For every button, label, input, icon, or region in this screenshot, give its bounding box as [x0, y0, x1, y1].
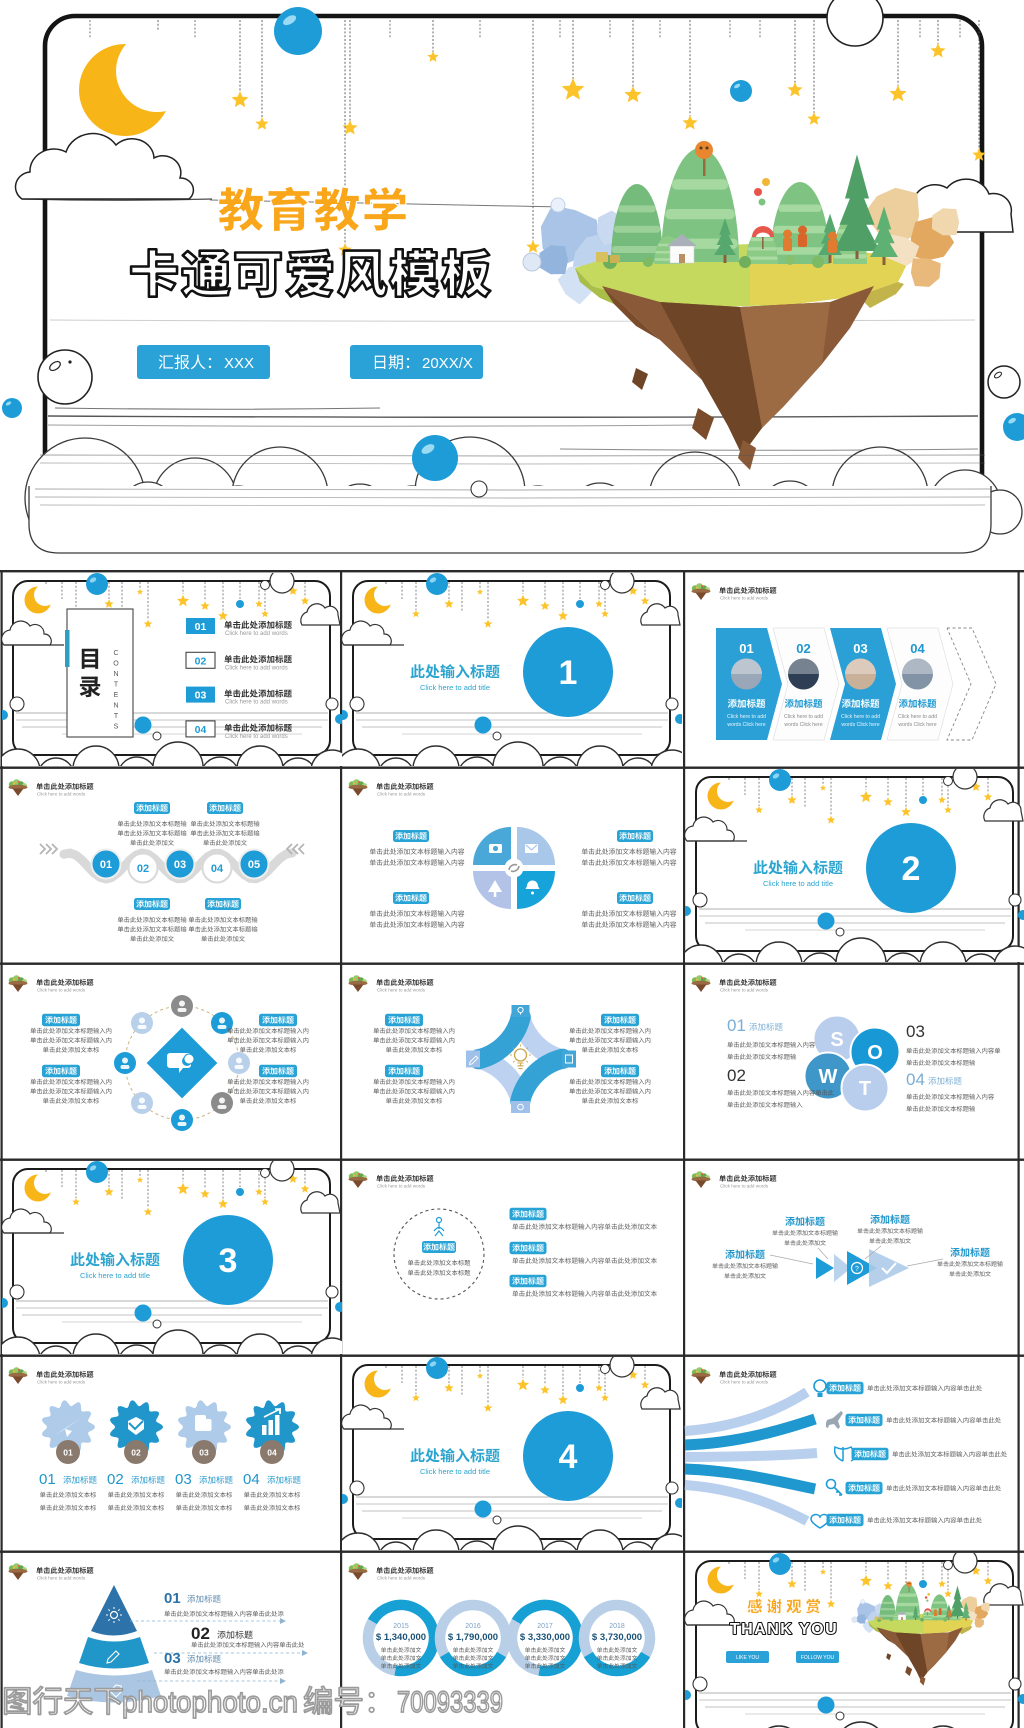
svg-text:03: 03 [174, 859, 186, 871]
svg-text:C: C [113, 650, 118, 657]
svg-text:words Click here: words Click here [841, 722, 879, 728]
svg-text:01: 01 [100, 859, 112, 871]
svg-text:02: 02 [107, 1471, 124, 1488]
svg-text:Click here to add words: Click here to add words [720, 596, 769, 601]
svg-text:02: 02 [195, 655, 207, 667]
svg-text:Click here to add: Click here to add [784, 714, 823, 720]
svg-text:05: 05 [248, 859, 260, 871]
svg-text:LIKE YOU: LIKE YOU [736, 1655, 759, 1661]
svg-text:words Click here: words Click here [727, 722, 765, 728]
svg-text:Click here to add words: Click here to add words [720, 1380, 769, 1385]
svg-text:2016: 2016 [465, 1623, 481, 1630]
svg-text:Click here to add words: Click here to add words [377, 792, 426, 797]
svg-text:01: 01 [727, 1016, 746, 1035]
svg-text:03: 03 [199, 1448, 209, 1458]
svg-text:W: W [819, 1066, 838, 1088]
svg-text:Click here to add words: Click here to add words [225, 700, 288, 706]
svg-text:XXX: XXX [224, 355, 254, 372]
svg-text:$ 3,730,000: $ 3,730,000 [592, 1632, 642, 1643]
svg-text:Click here to add words: Click here to add words [37, 792, 86, 797]
svg-text:O: O [867, 1042, 883, 1064]
svg-text:Click here to add: Click here to add [841, 714, 880, 720]
svg-text:FOLLOW YOU: FOLLOW YOU [801, 1655, 835, 1661]
svg-text:Click here to add words: Click here to add words [225, 734, 288, 740]
svg-text:2017: 2017 [537, 1623, 553, 1630]
svg-text:words Click here: words Click here [784, 722, 822, 728]
svg-text:T: T [859, 1078, 871, 1100]
svg-text:Click here to add title: Click here to add title [420, 683, 490, 692]
svg-text:N: N [113, 671, 118, 678]
svg-text:Click here to add title: Click here to add title [763, 879, 833, 888]
svg-text:20XX/X: 20XX/X [422, 355, 473, 372]
svg-text:1: 1 [559, 654, 578, 692]
svg-text:$ 1,340,000: $ 1,340,000 [376, 1632, 426, 1643]
svg-text:04: 04 [267, 1448, 277, 1458]
svg-text:Click here to add words: Click here to add words [377, 1184, 426, 1189]
svg-text:$ 3,330,000: $ 3,330,000 [520, 1632, 570, 1643]
svg-text:photophoto.cn: photophoto.cn [122, 1686, 298, 1719]
svg-text:02: 02 [137, 863, 149, 875]
svg-text:2015: 2015 [393, 1623, 409, 1630]
svg-text:4: 4 [559, 1438, 578, 1476]
svg-text:Click here to add: Click here to add [727, 714, 766, 720]
svg-text:02: 02 [727, 1066, 746, 1085]
svg-text:E: E [114, 692, 119, 699]
svg-text:03: 03 [906, 1022, 925, 1041]
svg-text:04: 04 [910, 641, 925, 656]
svg-text:Click here to add: Click here to add [898, 714, 937, 720]
svg-text:03: 03 [175, 1471, 192, 1488]
svg-text:03: 03 [164, 1650, 181, 1667]
svg-text:words Click here: words Click here [898, 722, 936, 728]
svg-text:02: 02 [191, 1624, 210, 1643]
svg-text:04: 04 [211, 863, 224, 875]
svg-text:T: T [114, 682, 119, 689]
svg-text:THANK YOU: THANK YOU [730, 1621, 838, 1638]
svg-text:$ 1,790,000: $ 1,790,000 [448, 1632, 498, 1643]
svg-text:2018: 2018 [609, 1623, 625, 1630]
svg-text:04: 04 [195, 724, 207, 736]
svg-text:01: 01 [63, 1448, 73, 1458]
svg-text:2: 2 [902, 850, 921, 888]
svg-text:3: 3 [219, 1242, 238, 1280]
svg-text:Click here to add words: Click here to add words [720, 1184, 769, 1189]
svg-text:01: 01 [39, 1471, 56, 1488]
svg-text:T: T [114, 713, 119, 720]
svg-text:Click here to add words: Click here to add words [37, 1380, 86, 1385]
svg-text:Click here to add words: Click here to add words [225, 631, 288, 637]
svg-text:Click here to add words: Click here to add words [720, 988, 769, 993]
svg-text:S: S [830, 1029, 843, 1051]
svg-text:Click here to add title: Click here to add title [420, 1467, 490, 1476]
svg-text:Click here to add words: Click here to add words [377, 1576, 426, 1581]
svg-text:01: 01 [195, 621, 207, 633]
svg-text:04: 04 [243, 1471, 260, 1488]
svg-text:?: ? [855, 1266, 859, 1273]
svg-text:03: 03 [853, 641, 867, 656]
svg-text:70093339: 70093339 [397, 1686, 503, 1719]
svg-text:Click here to add words: Click here to add words [37, 988, 86, 993]
svg-text:Click here to add words: Click here to add words [377, 988, 426, 993]
svg-text:01: 01 [739, 641, 753, 656]
svg-text:04: 04 [906, 1070, 925, 1089]
svg-text:03: 03 [195, 690, 207, 702]
svg-text:Click here to add words: Click here to add words [225, 665, 288, 671]
svg-text:02: 02 [796, 641, 810, 656]
svg-text:O: O [113, 661, 119, 668]
svg-text:Click here to add title: Click here to add title [80, 1271, 150, 1280]
svg-text:S: S [114, 724, 119, 731]
svg-text:Click here to add words: Click here to add words [37, 1576, 86, 1581]
svg-text:01: 01 [164, 1590, 181, 1607]
svg-text:02: 02 [131, 1448, 141, 1458]
svg-text:N: N [113, 703, 118, 710]
